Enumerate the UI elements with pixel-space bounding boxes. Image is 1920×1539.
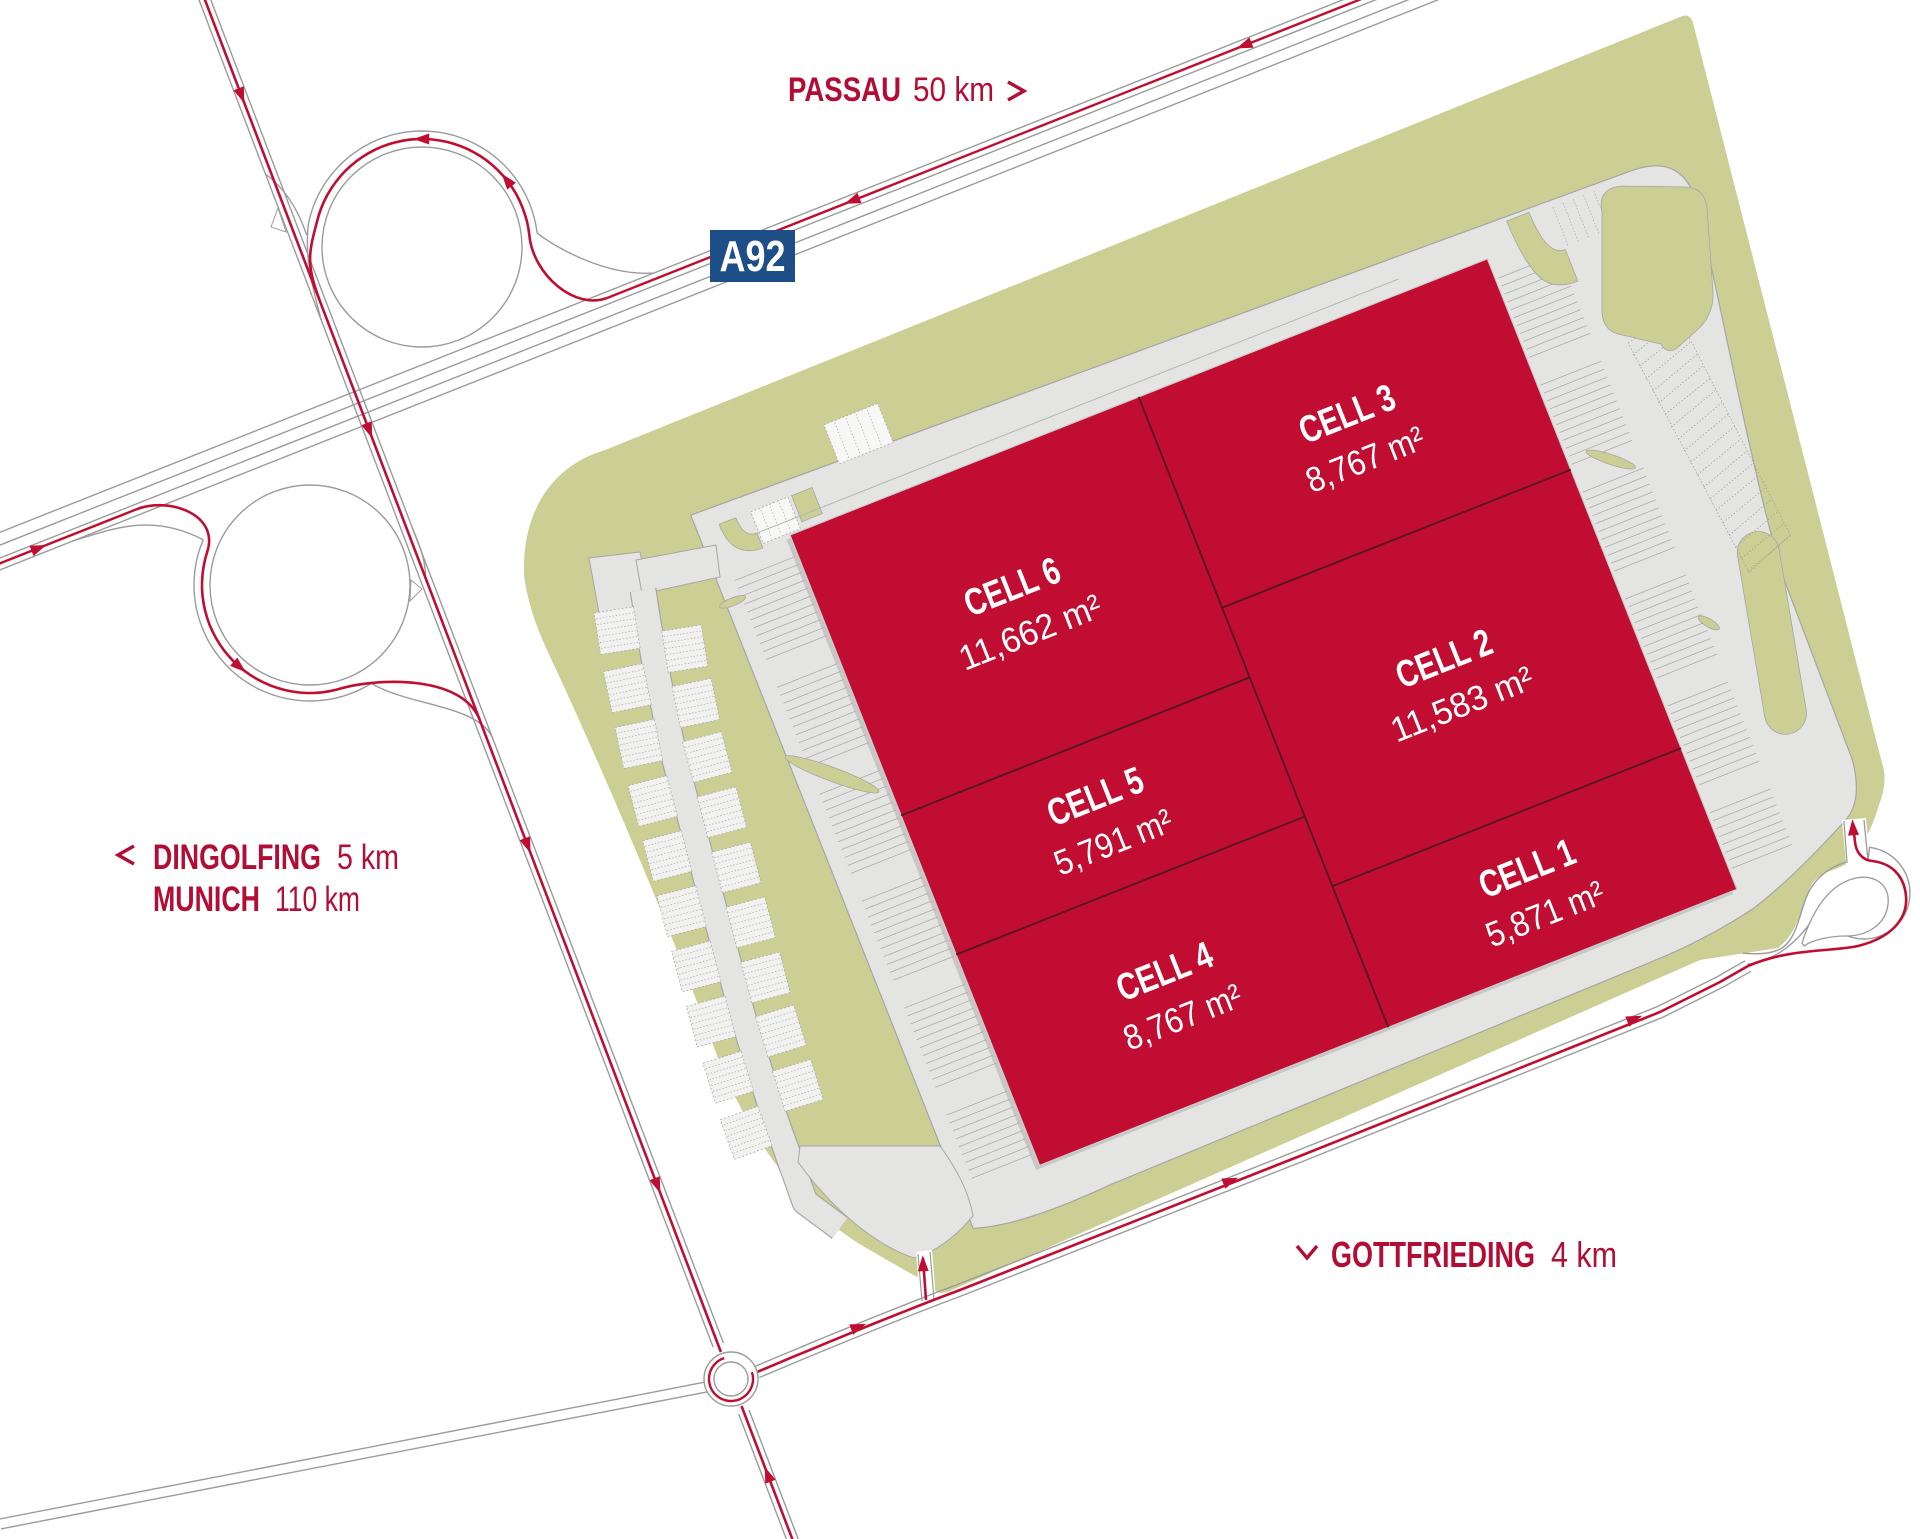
svg-text:DINGOLFING: DINGOLFING <box>153 838 321 877</box>
svg-text:GOTTFRIEDING: GOTTFRIEDING <box>1331 1234 1535 1275</box>
svg-text:110 km: 110 km <box>275 880 360 919</box>
svg-text:A92: A92 <box>720 232 786 281</box>
svg-text:PASSAU: PASSAU <box>788 71 901 109</box>
svg-text:MUNICH: MUNICH <box>153 880 260 919</box>
svg-text:50 km: 50 km <box>913 71 994 109</box>
svg-text:5 km: 5 km <box>337 838 399 877</box>
svg-text:4 km: 4 km <box>1551 1234 1617 1275</box>
